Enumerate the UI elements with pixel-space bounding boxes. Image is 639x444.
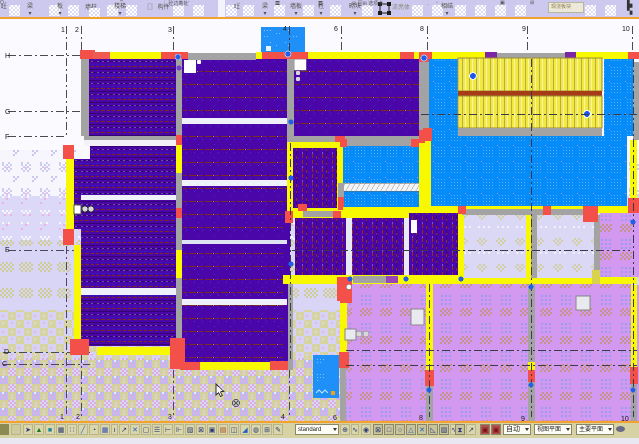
svg-text:G: G — [5, 109, 10, 116]
svg-text:1: 1 — [61, 27, 65, 34]
svg-text:2: 2 — [76, 414, 80, 421]
svg-text:E: E — [5, 247, 10, 254]
svg-text:C: C — [2, 361, 7, 368]
svg-text:3: 3 — [168, 414, 172, 421]
svg-text:10: 10 — [622, 26, 630, 33]
svg-text:1: 1 — [60, 414, 64, 421]
svg-text:6: 6 — [334, 26, 338, 33]
svg-text:2: 2 — [75, 27, 79, 34]
svg-text:4: 4 — [281, 414, 285, 421]
svg-text:9: 9 — [522, 26, 526, 33]
svg-text:4: 4 — [283, 26, 287, 33]
svg-text:H: H — [5, 53, 10, 60]
svg-text:F: F — [5, 134, 9, 141]
svg-text:8: 8 — [420, 26, 424, 33]
svg-text:D: D — [4, 349, 9, 356]
svg-text:3: 3 — [168, 27, 172, 34]
